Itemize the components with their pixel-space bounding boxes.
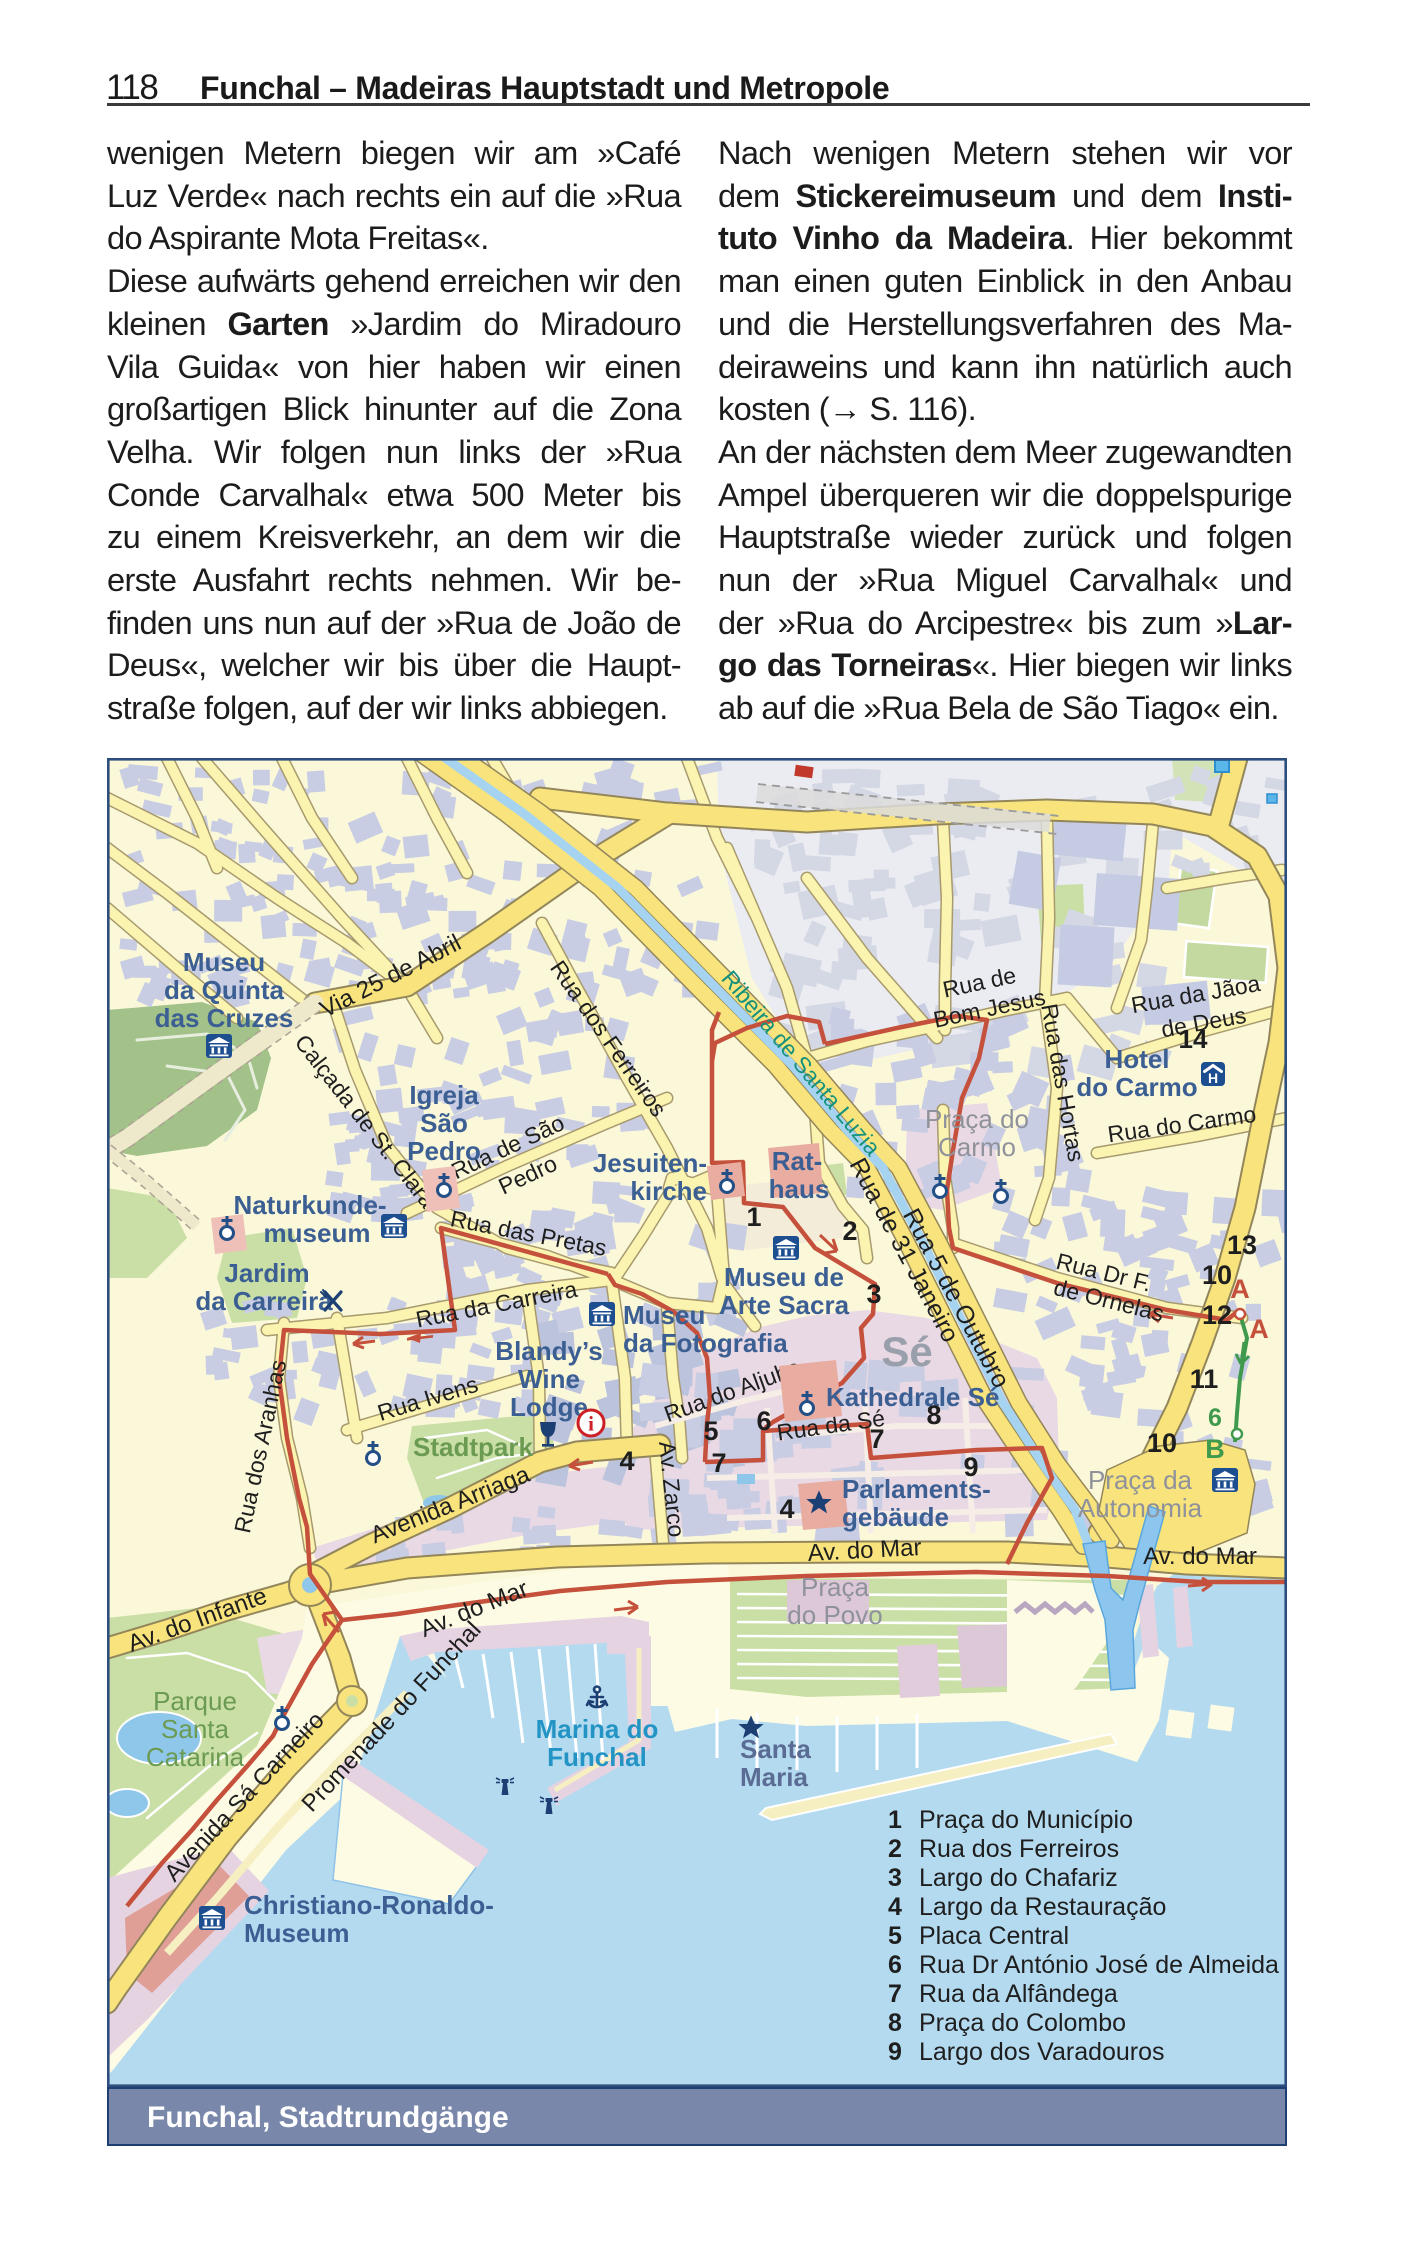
svg-text:Praça do Município: Praça do Município (919, 1806, 1133, 1834)
svg-text:A: A (1230, 1274, 1250, 1304)
svg-text:Christiano-Ronaldo-: Christiano-Ronaldo- (244, 1890, 494, 1920)
svg-text:Maria: Maria (740, 1762, 808, 1792)
svg-text:da Carreira: da Carreira (195, 1286, 333, 1316)
svg-text:da Fotografia: da Fotografia (623, 1328, 788, 1358)
svg-text:Wine: Wine (518, 1364, 580, 1394)
svg-text:Stadtpark: Stadtpark (413, 1432, 533, 1462)
svg-text:das Cruzes: das Cruzes (155, 1003, 294, 1033)
svg-text:8: 8 (926, 1400, 941, 1430)
svg-text:Museu: Museu (183, 947, 265, 977)
svg-text:Catarina: Catarina (146, 1742, 245, 1772)
svg-text:Blandy’s: Blandy’s (495, 1336, 602, 1366)
svg-text:A: A (1249, 1314, 1269, 1344)
svg-text:Largo da Restauração: Largo da Restauração (919, 1893, 1166, 1921)
svg-text:Santa: Santa (740, 1734, 811, 1764)
svg-text:Rua da Alfândega: Rua da Alfândega (919, 1980, 1118, 2008)
svg-text:Hotel: Hotel (1105, 1044, 1170, 1074)
svg-text:Jardim: Jardim (224, 1258, 309, 1288)
svg-text:Rat-: Rat- (772, 1146, 823, 1176)
svg-text:4: 4 (779, 1494, 794, 1524)
svg-text:Santa: Santa (161, 1714, 229, 1744)
svg-text:Naturkunde-: Naturkunde- (233, 1190, 386, 1220)
svg-text:Rua dos Ferreiros: Rua dos Ferreiros (919, 1835, 1119, 1863)
svg-text:Lodge: Lodge (510, 1392, 588, 1422)
svg-text:1: 1 (746, 1202, 761, 1232)
svg-text:Marina do: Marina do (536, 1714, 659, 1744)
svg-text:5: 5 (888, 1922, 902, 1950)
svg-text:Arte Sacra: Arte Sacra (719, 1290, 850, 1320)
svg-text:7: 7 (888, 1980, 902, 2008)
svg-text:14: 14 (1179, 1024, 1208, 1054)
svg-text:Rua Dr António José de Almeida: Rua Dr António José de Almeida (919, 1951, 1279, 1979)
svg-text:3: 3 (888, 1864, 902, 1892)
svg-text:4: 4 (619, 1446, 634, 1476)
svg-text:Museu: Museu (623, 1300, 705, 1330)
svg-text:9: 9 (963, 1452, 978, 1482)
svg-text:Praça do Colombo: Praça do Colombo (919, 2009, 1126, 2037)
svg-text:kirche: kirche (630, 1176, 707, 1206)
svg-text:i: i (588, 1412, 594, 1436)
svg-text:10: 10 (1147, 1428, 1177, 1458)
svg-text:7: 7 (869, 1424, 884, 1454)
svg-text:5: 5 (703, 1416, 718, 1446)
svg-text:Sé: Sé (881, 1328, 932, 1375)
svg-text:São: São (420, 1108, 468, 1138)
svg-text:Largo dos Varadouros: Largo dos Varadouros (919, 2038, 1165, 2066)
svg-text:10: 10 (1202, 1260, 1232, 1290)
svg-text:Placa Central: Placa Central (919, 1922, 1069, 1950)
svg-text:Pedro: Pedro (407, 1136, 481, 1166)
svg-text:6: 6 (1208, 1404, 1222, 1432)
svg-text:Praça: Praça (801, 1572, 869, 1602)
svg-text:Museum: Museum (244, 1918, 349, 1948)
svg-text:13: 13 (1227, 1230, 1257, 1260)
svg-text:6: 6 (756, 1406, 771, 1436)
svg-text:Praça do: Praça do (925, 1104, 1029, 1134)
svg-text:3: 3 (866, 1279, 881, 1309)
svg-text:Igreja: Igreja (409, 1080, 479, 1110)
svg-text:11: 11 (1190, 1364, 1219, 1394)
svg-text:Kathedrale Sé: Kathedrale Sé (826, 1382, 999, 1412)
svg-text:9: 9 (888, 2038, 902, 2066)
svg-text:haus: haus (769, 1174, 830, 1204)
svg-text:4: 4 (888, 1893, 902, 1921)
svg-text:gebäude: gebäude (842, 1502, 949, 1532)
svg-text:12: 12 (1202, 1300, 1232, 1330)
svg-text:Jesuiten-: Jesuiten- (593, 1148, 707, 1178)
svg-text:Funchal: Funchal (547, 1742, 647, 1772)
svg-text:Av. do Mar: Av. do Mar (1143, 1543, 1257, 1570)
svg-text:Carmo: Carmo (938, 1132, 1016, 1162)
svg-text:Autonomia: Autonomia (1078, 1493, 1203, 1523)
svg-text:1: 1 (888, 1806, 902, 1834)
svg-text:2: 2 (888, 1835, 902, 1863)
svg-text:2: 2 (842, 1216, 857, 1246)
svg-text:Praça da: Praça da (1088, 1465, 1193, 1495)
svg-text:6: 6 (888, 1951, 902, 1979)
svg-text:do Carmo: do Carmo (1076, 1072, 1197, 1102)
svg-text:Museu de: Museu de (724, 1262, 844, 1292)
svg-text:da Quinta: da Quinta (164, 975, 284, 1005)
svg-text:Largo do Chafariz: Largo do Chafariz (919, 1864, 1118, 1892)
svg-text:B: B (1205, 1434, 1225, 1464)
svg-text:8: 8 (888, 2009, 902, 2037)
svg-text:H: H (1208, 1070, 1218, 1086)
svg-text:museum: museum (264, 1218, 371, 1248)
svg-text:do Povo: do Povo (787, 1600, 882, 1630)
svg-text:Parque: Parque (153, 1686, 237, 1716)
svg-text:7: 7 (711, 1448, 726, 1478)
